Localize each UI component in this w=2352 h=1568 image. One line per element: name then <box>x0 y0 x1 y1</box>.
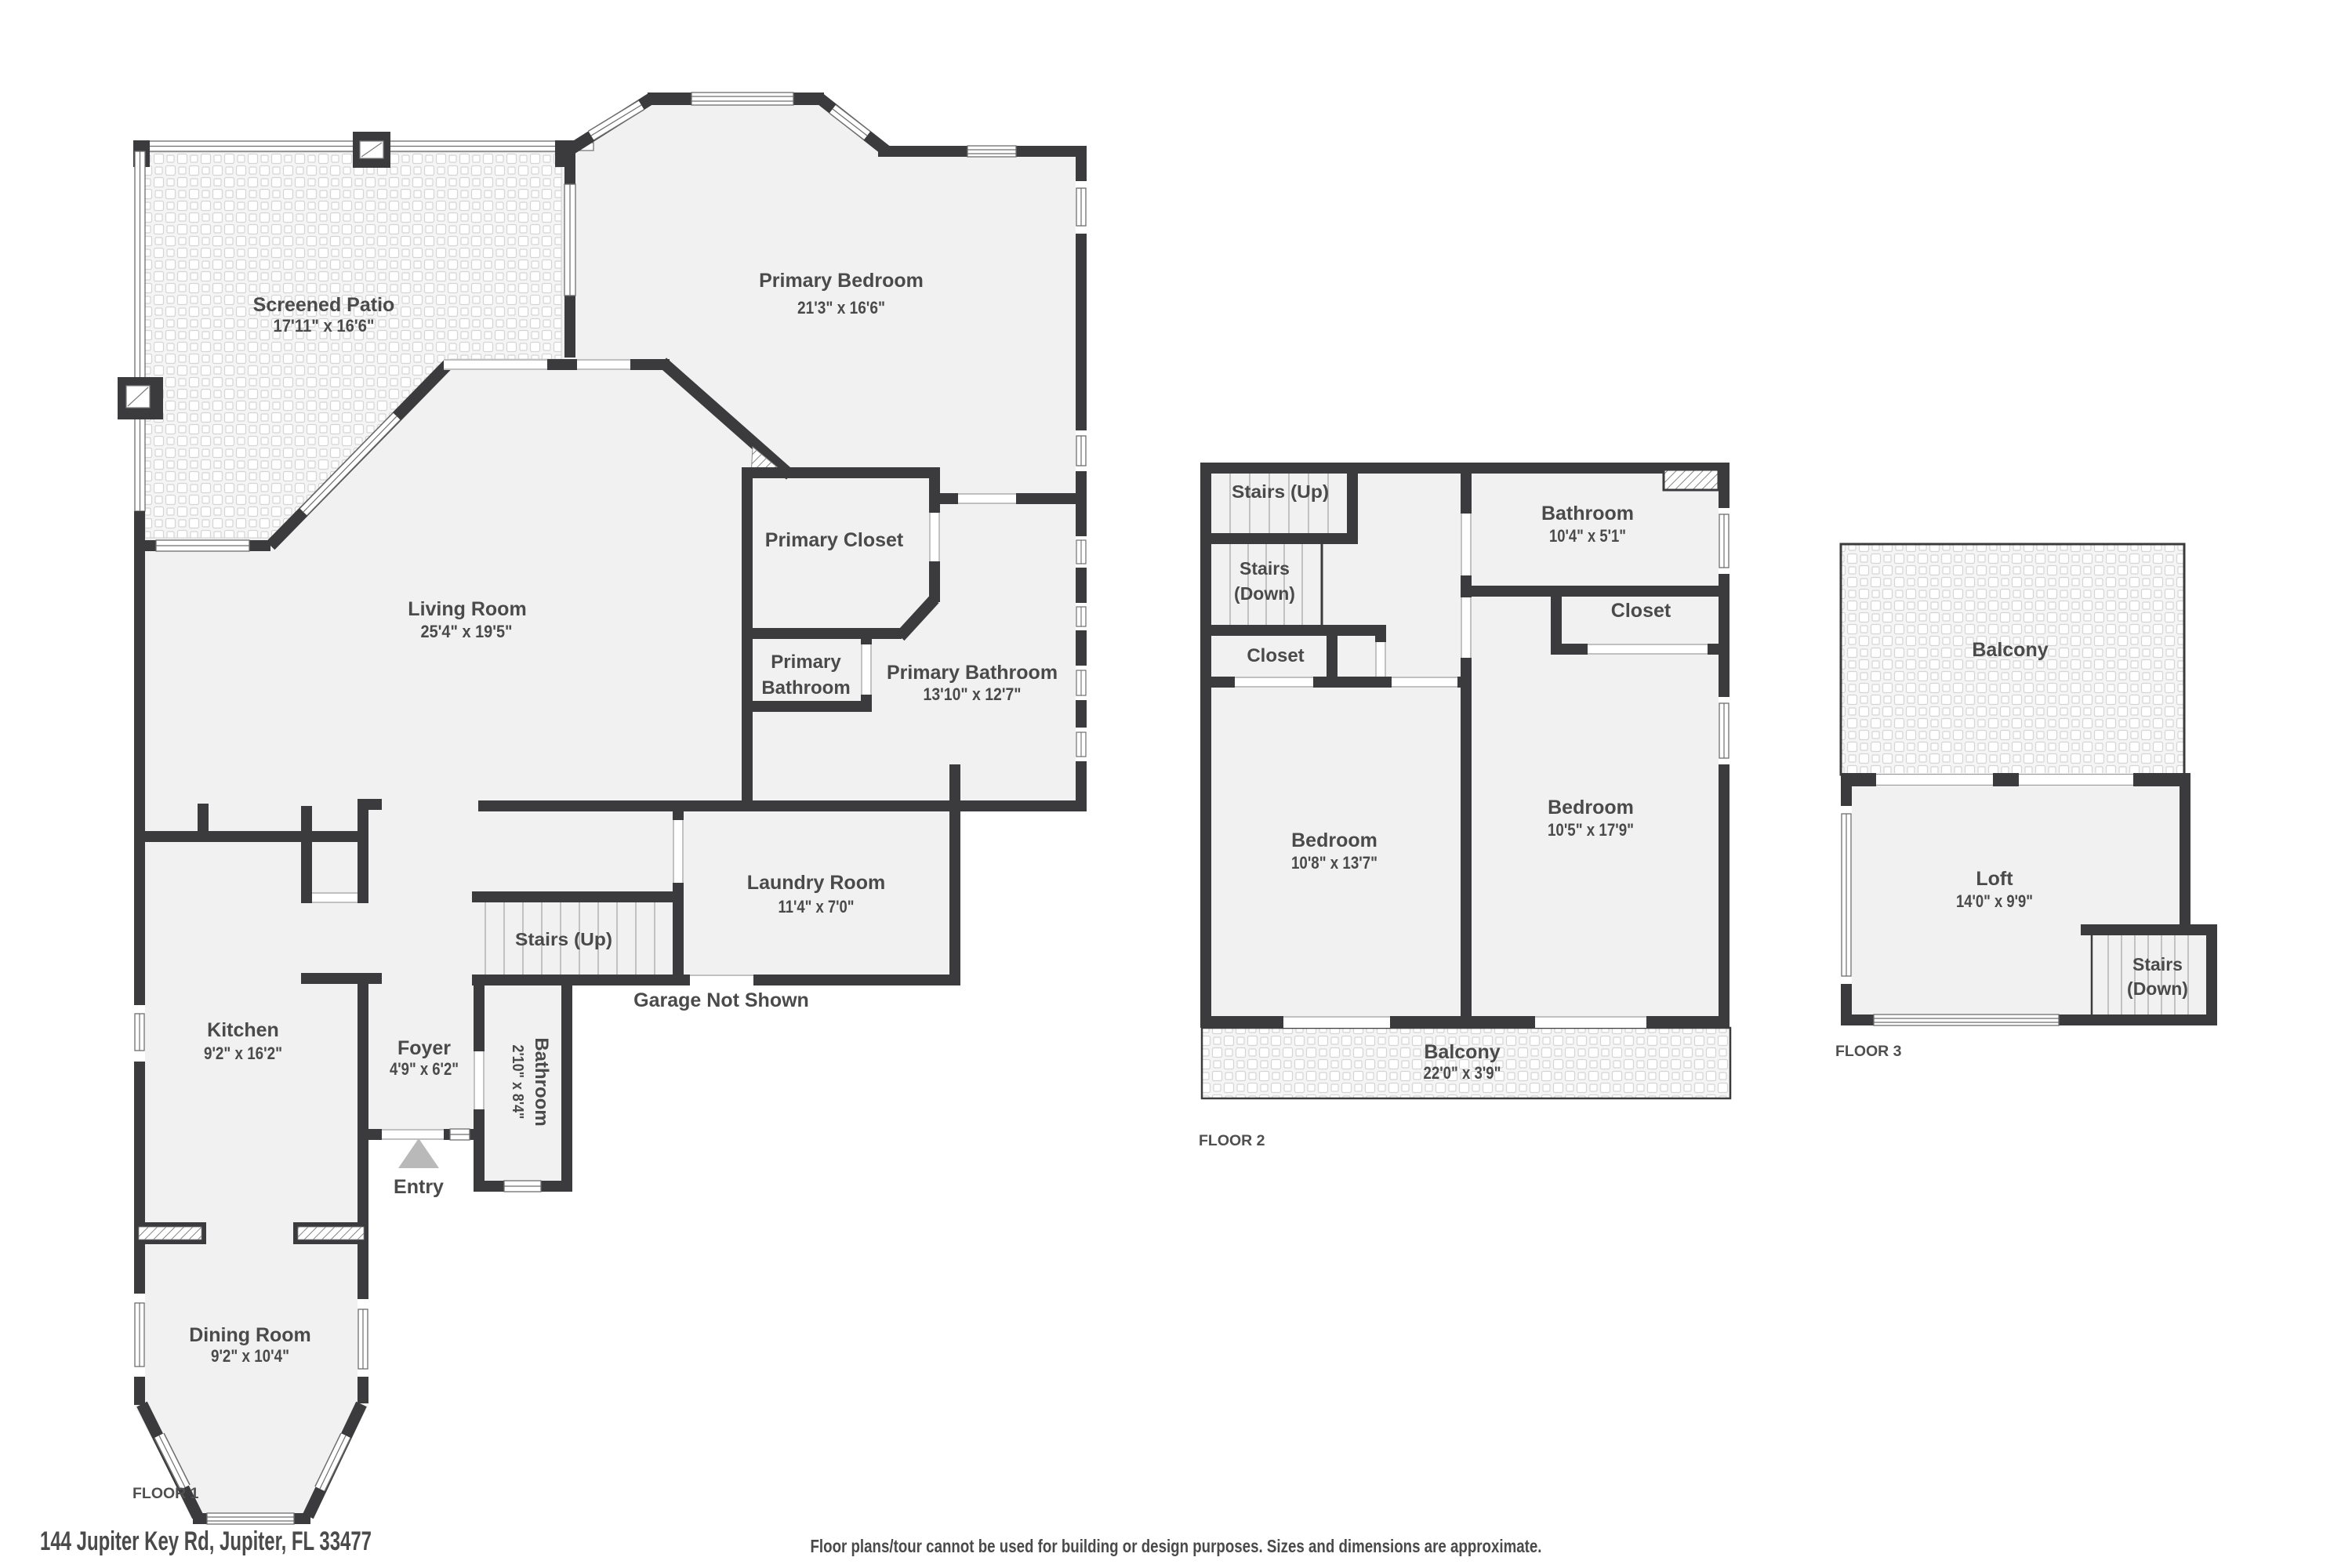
svg-text:17'11" x 16'6": 17'11" x 16'6" <box>274 316 375 336</box>
svg-text:10'4" x 5'1": 10'4" x 5'1" <box>1549 526 1626 546</box>
svg-text:144 Jupiter Key Rd, Jupiter, F: 144 Jupiter Key Rd, Jupiter, FL 33477 <box>40 1526 372 1556</box>
svg-text:13'10" x 12'7": 13'10" x 12'7" <box>924 684 1022 704</box>
svg-text:Primary: Primary <box>771 652 841 673</box>
svg-text:FLOOR 1: FLOOR 1 <box>132 1485 199 1502</box>
svg-text:11'4" x 7'0": 11'4" x 7'0" <box>779 897 855 916</box>
svg-text:21'3" x 16'6": 21'3" x 16'6" <box>797 298 885 318</box>
svg-text:2'10" x 8'4": 2'10" x 8'4" <box>509 1045 526 1120</box>
svg-text:Primary Closet: Primary Closet <box>765 529 904 551</box>
svg-text:Primary Bathroom: Primary Bathroom <box>887 662 1058 684</box>
svg-text:Foyer: Foyer <box>397 1037 451 1059</box>
svg-text:14'0" x 9'9": 14'0" x 9'9" <box>1956 891 2033 911</box>
svg-text:Screened Patio: Screened Patio <box>253 294 395 316</box>
svg-text:FLOOR 3: FLOOR 3 <box>1835 1043 1902 1060</box>
svg-text:(Down): (Down) <box>2127 978 2188 999</box>
svg-text:9'2" x 10'4": 9'2" x 10'4" <box>211 1346 289 1366</box>
svg-text:Primary Bedroom: Primary Bedroom <box>759 270 924 292</box>
svg-text:Living Room: Living Room <box>408 598 526 620</box>
svg-text:Bedroom: Bedroom <box>1291 829 1377 851</box>
svg-text:10'5" x 17'9": 10'5" x 17'9" <box>1548 820 1634 840</box>
svg-text:9'2" x 16'2": 9'2" x 16'2" <box>204 1044 282 1063</box>
svg-text:Entry: Entry <box>394 1176 444 1198</box>
svg-text:Dining Room: Dining Room <box>189 1324 311 1346</box>
svg-text:25'4" x 19'5": 25'4" x 19'5" <box>421 622 513 641</box>
svg-text:Bathroom: Bathroom <box>1541 503 1634 524</box>
svg-text:Floor plans/tour cannot be use: Floor plans/tour cannot be used for buil… <box>811 1536 1542 1556</box>
svg-text:Balcony: Balcony <box>1424 1041 1500 1063</box>
svg-text:(Down): (Down) <box>1234 583 1295 604</box>
svg-text:Loft: Loft <box>1976 868 2013 890</box>
svg-text:Balcony: Balcony <box>1972 639 2048 661</box>
svg-text:Stairs (Up): Stairs (Up) <box>1232 481 1329 502</box>
svg-text:Stairs (Up): Stairs (Up) <box>515 929 612 949</box>
svg-text:Bathroom: Bathroom <box>531 1037 552 1126</box>
svg-text:Stairs: Stairs <box>1240 558 1290 579</box>
svg-text:Laundry Room: Laundry Room <box>747 872 885 894</box>
svg-text:Stairs: Stairs <box>2132 954 2183 975</box>
svg-text:Bedroom: Bedroom <box>1548 797 1634 818</box>
svg-text:Kitchen: Kitchen <box>207 1019 279 1041</box>
svg-text:Closet: Closet <box>1611 600 1671 622</box>
svg-text:4'9" x 6'2": 4'9" x 6'2" <box>390 1059 459 1079</box>
svg-text:22'0" x 3'9": 22'0" x 3'9" <box>1424 1063 1501 1083</box>
svg-text:Bathroom: Bathroom <box>761 677 850 699</box>
svg-text:FLOOR 2: FLOOR 2 <box>1199 1132 1265 1149</box>
svg-text:10'8" x 13'7": 10'8" x 13'7" <box>1291 853 1377 873</box>
svg-text:Closet: Closet <box>1247 645 1304 666</box>
svg-text:Garage Not Shown: Garage Not Shown <box>633 989 809 1011</box>
